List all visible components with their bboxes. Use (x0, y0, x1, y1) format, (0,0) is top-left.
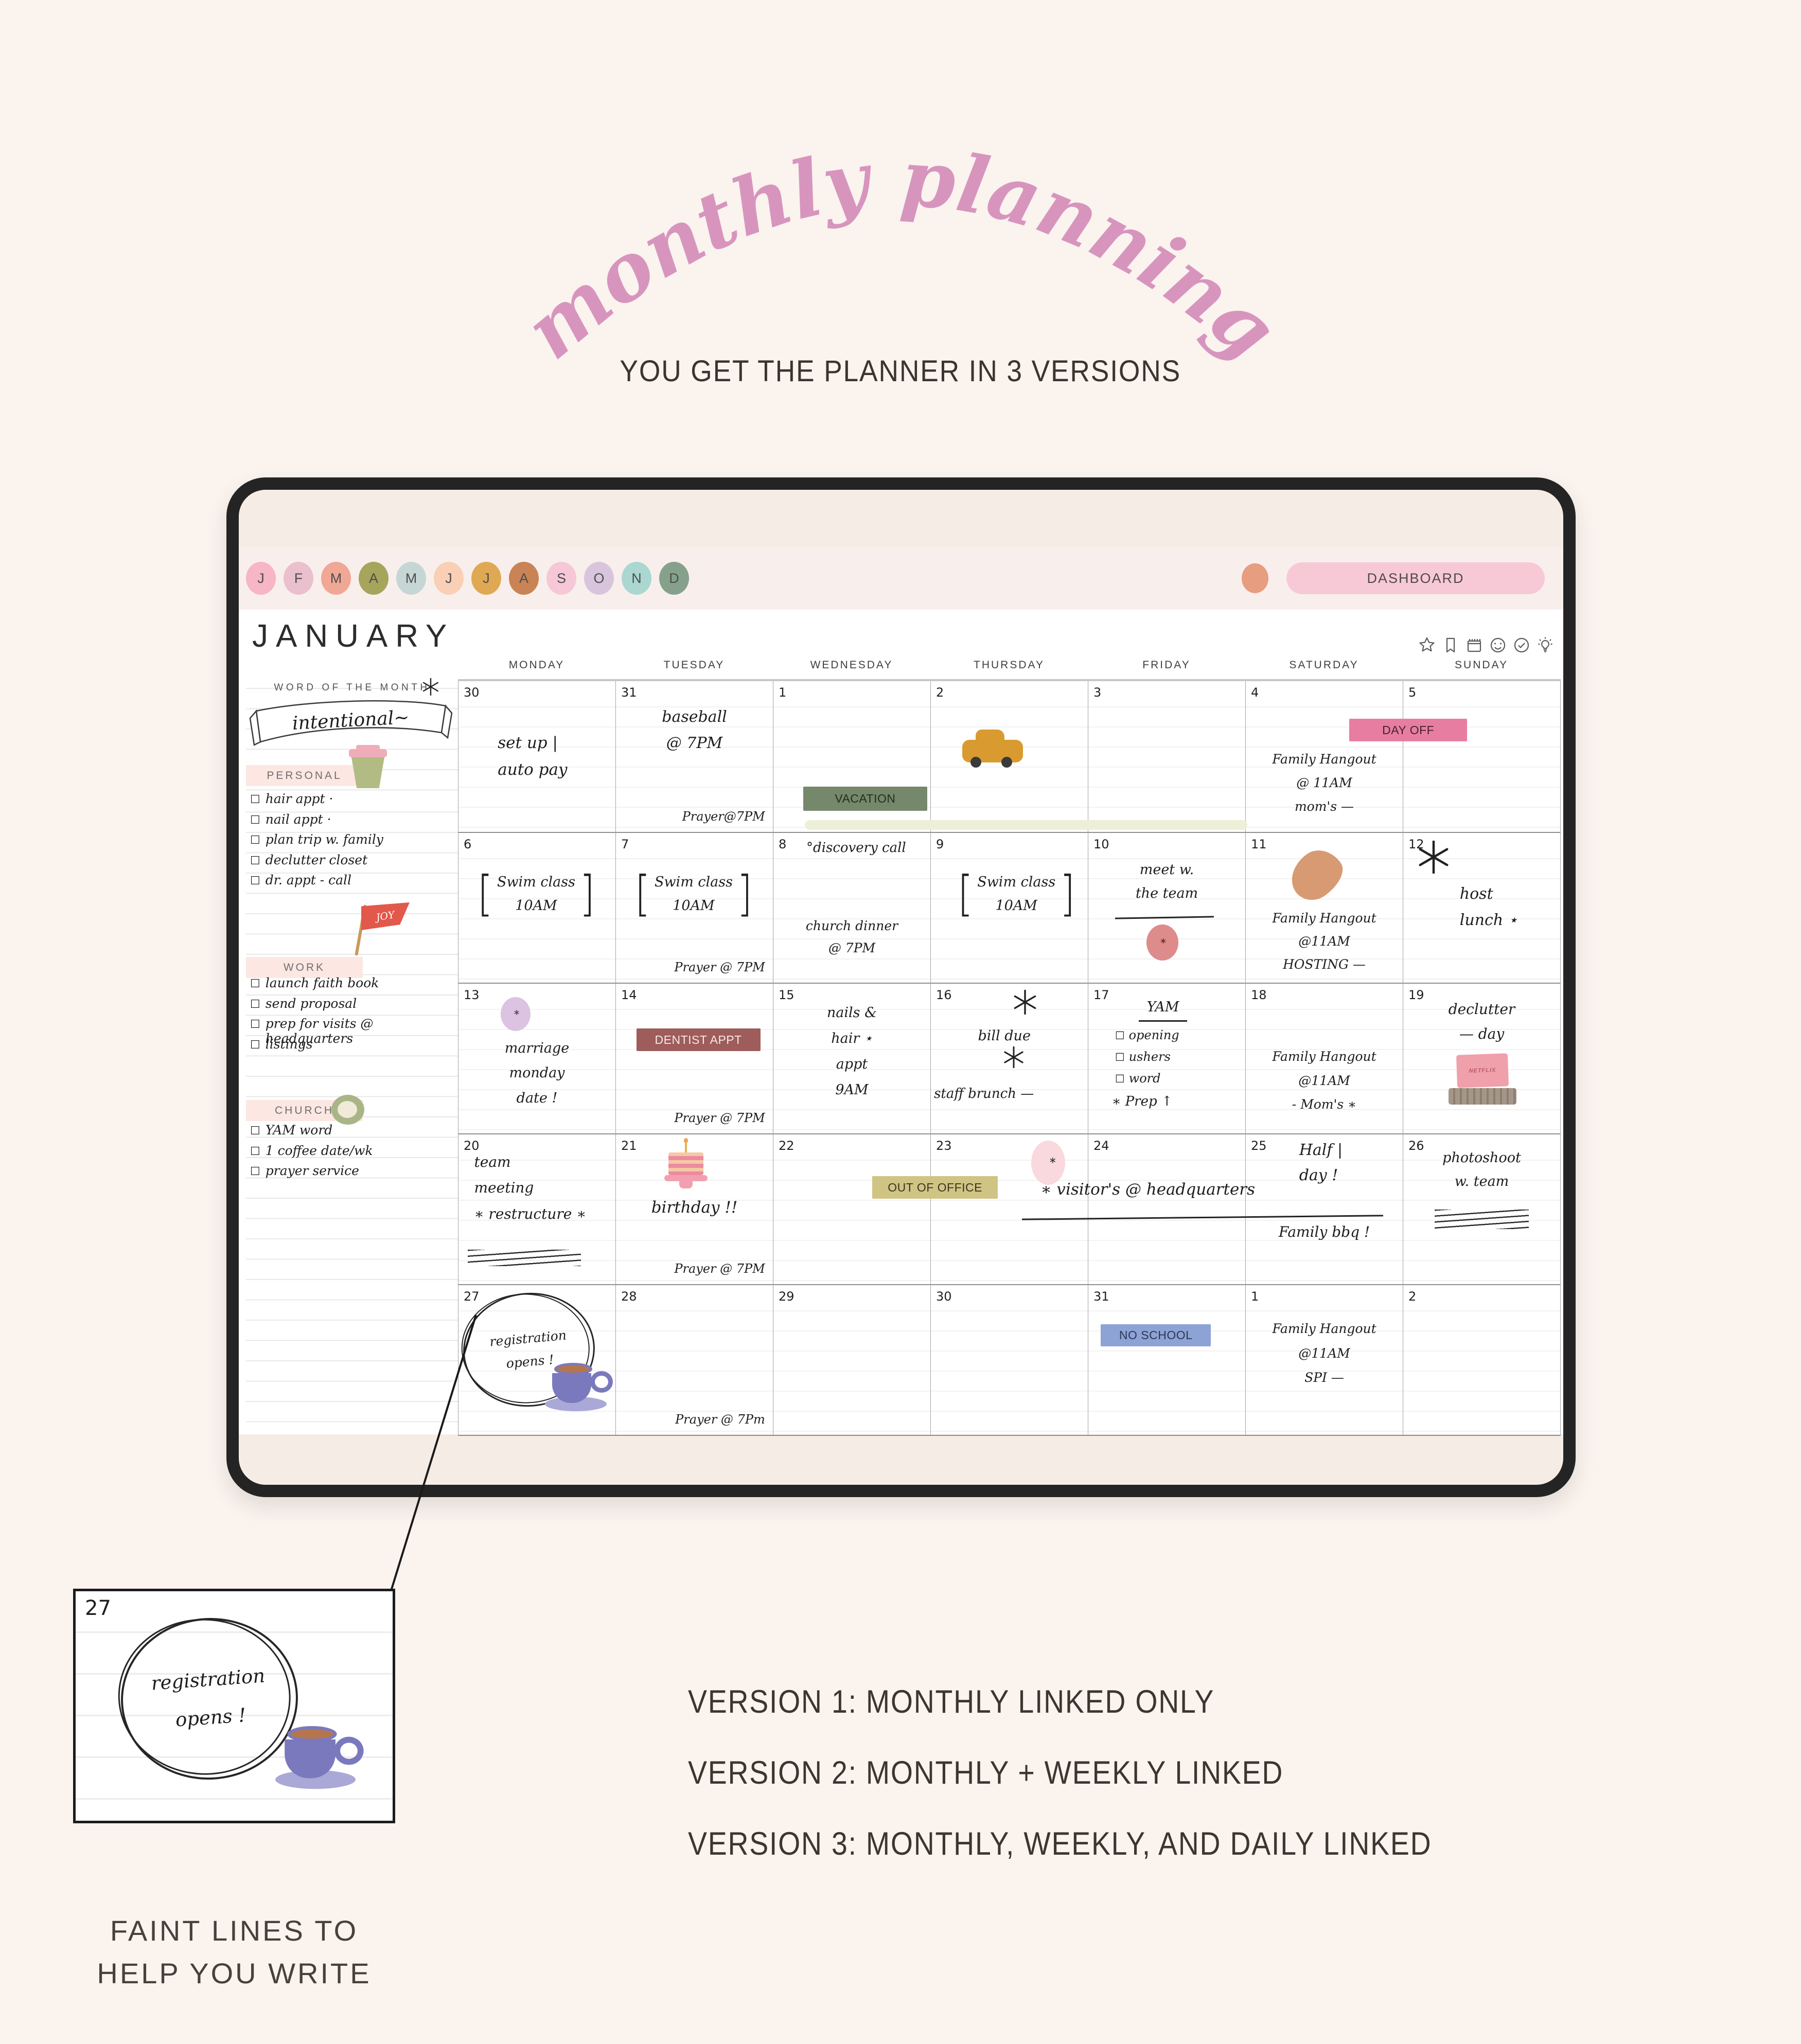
month-tab-J[interactable]: J (434, 562, 464, 595)
hand-note: host lunch ⋆ (1460, 881, 1518, 933)
day-number: 23 (936, 1139, 952, 1153)
calendar-cell-20[interactable]: 20team meeting ∗ restructure ∗ (458, 1133, 615, 1284)
calendar-cell-31[interactable]: 31baseball @ 7PMPrayer@7PM (615, 681, 773, 832)
day-number: 7 (621, 837, 629, 851)
sidebar-item: ☐YAM word (250, 1123, 453, 1143)
hand-note: ∗ visitor's @ headquarters (1041, 1176, 1410, 1203)
calendar-cell-12[interactable]: 12host lunch ⋆ (1403, 832, 1560, 983)
month-tab-J[interactable]: J (246, 562, 276, 595)
month-tabs: JFMAMJJASOND (246, 562, 689, 595)
sidebar-item: ☐dr. appt - call (250, 873, 453, 893)
day-header-wednesday: WEDNESDAY (773, 659, 930, 671)
day-number: 18 (1251, 988, 1267, 1002)
prayer-note: Prayer @ 7PM (674, 957, 765, 978)
bookmark-icon[interactable] (1442, 636, 1459, 654)
check-circle-icon[interactable] (1513, 636, 1530, 654)
day-number: 6 (464, 837, 471, 851)
day-header-monday: MONDAY (458, 659, 615, 671)
joy-flag-sticker: JOY (355, 898, 413, 959)
day-number: 3 (1093, 685, 1101, 700)
event-label: DENTIST APPT (637, 1028, 761, 1051)
bracketed-note: [Swim class 10AM] (463, 870, 609, 918)
day-header-saturday: SATURDAY (1245, 659, 1403, 671)
prayer-note: Prayer @ 7PM (674, 1108, 765, 1129)
hand-note: declutter — day (1403, 997, 1560, 1046)
smiley-icon[interactable] (1489, 636, 1507, 654)
latte-sticker (331, 1095, 364, 1125)
hand-note: baseball @ 7PM (616, 704, 773, 756)
day-number: 2 (1408, 1289, 1416, 1304)
scribble-doodle (1435, 1210, 1529, 1229)
calendar-cell-15[interactable]: 15nails & hair ⋆ appt 9AM (773, 983, 930, 1133)
croissant-sticker (1282, 841, 1351, 908)
planner-page: JANUARY WORD OF THE MONTH intentional~ (239, 610, 1563, 1434)
callout-caption: FAINT LINES TO HELP YOU WRITE (46, 1910, 422, 1995)
day-header-sunday: SUNDAY (1403, 659, 1560, 671)
calendar-cell-25[interactable]: 25Half | day !Family bbq ! (1245, 1133, 1403, 1284)
month-tab-D[interactable]: D (659, 562, 689, 595)
taxi-sticker (962, 730, 1023, 769)
calendar-cell-31[interactable]: 31NO SCHOOL (1088, 1284, 1245, 1435)
sidebar-section-title-work: WORK (246, 957, 363, 978)
hand-note: meet w. the team (1088, 858, 1245, 905)
svg-text:monthly planning: monthly planning (507, 131, 1294, 377)
hand-note: bill due (978, 1024, 1031, 1048)
calendar-cell-5[interactable]: 5 (1403, 681, 1560, 832)
calendar-cell-9[interactable]: 9[Swim class 10AM] (930, 832, 1088, 983)
day-number: 29 (779, 1289, 794, 1304)
hand-note: Family bbq ! (1246, 1220, 1403, 1245)
calendar-cell-30[interactable]: 30set up | auto pay (458, 681, 615, 832)
profile-dot[interactable] (1242, 563, 1268, 593)
day-number: 28 (621, 1289, 637, 1304)
hand-note: staff brunch — (934, 1082, 1034, 1105)
underline-doodle (1115, 916, 1214, 919)
day-number: 4 (1251, 685, 1259, 700)
event-label: NO SCHOOL (1101, 1324, 1211, 1347)
day-number: 31 (621, 685, 637, 700)
day-number: 21 (621, 1139, 637, 1153)
day-number: 16 (936, 988, 952, 1002)
cake-sticker (663, 1139, 709, 1188)
calendar-cell-16[interactable]: 16bill duestaff brunch — (930, 983, 1088, 1133)
day-number: 27 (464, 1289, 480, 1304)
hand-note: ∗ Prep ↑ (1112, 1090, 1173, 1113)
calendar-cell-21[interactable]: 21birthday !!Prayer @ 7PM (615, 1133, 773, 1284)
dashboard-button[interactable]: DASHBOARD (1286, 562, 1545, 594)
month-tab-M[interactable]: M (321, 562, 351, 595)
red-circle-sticker (1146, 925, 1178, 961)
page: monthly planning YOU GET THE PLANNER IN … (0, 0, 1801, 2044)
star-doodle (1003, 1046, 1025, 1068)
day-number: 30 (464, 685, 480, 700)
calendar-cell-10[interactable]: 10meet w. the team (1088, 832, 1245, 983)
sidebar-item: ☐nail appt · (250, 812, 453, 832)
calendar-icon[interactable] (1465, 636, 1483, 654)
day-number: 10 (1093, 837, 1109, 851)
hand-note: marriage monday date ! (458, 1036, 615, 1111)
star-doodle (1013, 990, 1037, 1015)
calendar-cell-7[interactable]: 7[Swim class 10AM]Prayer @ 7PM (615, 832, 773, 983)
day-number: 31 (1093, 1289, 1109, 1304)
page-title: monthly planning (507, 131, 1294, 377)
sidebar-item: ☐1 coffee date/wk (250, 1143, 453, 1164)
toolbar (1418, 636, 1554, 654)
day-number: 13 (464, 988, 480, 1002)
day-header-tuesday: TUESDAY (615, 659, 773, 671)
sidebar-items: ☐launch faith book☐send proposal☐prep fo… (250, 975, 453, 1057)
star-doodle (1417, 841, 1450, 874)
month-tab-J[interactable]: J (471, 562, 501, 595)
star-icon[interactable] (1418, 636, 1436, 654)
day-number: 1 (779, 685, 786, 700)
calendar-cell-30[interactable]: 30 (930, 1284, 1088, 1435)
day-number: 25 (1251, 1139, 1267, 1153)
hand-note: photoshoot w. team (1403, 1146, 1560, 1194)
hero-subtitle: YOU GET THE PLANNER IN 3 VERSIONS (0, 354, 1801, 388)
month-tab-O[interactable]: O (584, 562, 614, 595)
scribble-doodle (468, 1250, 581, 1266)
day-number: 9 (936, 837, 944, 851)
version-line-2: VERSION 2: MONTHLY + WEEKLY LINKED (688, 1754, 1533, 1825)
calendar-cell-3[interactable]: 3 (1088, 681, 1245, 832)
day-header-thursday: THURSDAY (930, 659, 1088, 671)
calendar-grid: 30set up | auto pay31baseball @ 7PMPraye… (458, 679, 1561, 1436)
sidebar-item: ☐send proposal (250, 996, 453, 1017)
version-line-1: VERSION 1: MONTHLY LINKED ONLY (688, 1683, 1533, 1754)
hand-note: °discovery call (806, 837, 906, 859)
event-label: DAY OFF (1349, 719, 1467, 741)
day-number: 8 (779, 837, 786, 851)
prayer-note: Prayer @ 7Pm (675, 1409, 765, 1430)
prayer-note: Prayer @ 7PM (674, 1258, 765, 1279)
calendar-cell-11[interactable]: 11Family Hangout @11AM HOSTING — (1245, 832, 1403, 983)
calendar-cell-2[interactable]: 2 (1403, 1284, 1560, 1435)
hand-note: Family Hangout @11AM HOSTING — (1246, 907, 1403, 976)
calendar-cell-22[interactable]: 22OUT OF OFFICE (773, 1133, 930, 1284)
calendar-cell-27[interactable]: 27registration opens ! (458, 1284, 615, 1435)
calendar-cell-24[interactable]: 24 (1088, 1133, 1245, 1284)
bulb-icon[interactable] (1537, 636, 1554, 654)
calendar-cell-2[interactable]: 2 (930, 681, 1088, 832)
calendar-cell-1[interactable]: 1VACATION (773, 681, 930, 832)
sidebar-item: ☐launch faith book (250, 975, 453, 996)
hero-arc-title: monthly planning (489, 131, 1312, 388)
sparkle-icon (422, 678, 439, 696)
event-label: VACATION (803, 787, 927, 811)
calendar-cell-28[interactable]: 28Prayer @ 7Pm (615, 1284, 773, 1435)
calendar-cell-23[interactable]: 23∗ visitor's @ headquarters (930, 1133, 1088, 1284)
calendar-cell-18[interactable]: 18Family Hangout @11AM - Mom's ∗ (1245, 983, 1403, 1133)
calendar-cell-26[interactable]: 26photoshoot w. team (1403, 1133, 1560, 1284)
calendar-cell-13[interactable]: 13marriage monday date ! (458, 983, 615, 1133)
highlight-bar (805, 820, 1247, 830)
hand-note: set up | auto pay (498, 730, 567, 784)
sidebar-item: ☐declutter closet (250, 852, 453, 873)
day-number: 30 (936, 1289, 952, 1304)
joy-flag-text: JOY (376, 909, 396, 923)
callout-day-number: 27 (85, 1596, 111, 1620)
calendar-cell-29[interactable]: 29 (773, 1284, 930, 1435)
hand-note: birthday !! (616, 1194, 773, 1221)
calendar-cell-19[interactable]: 19declutter — dayNETFLIX (1403, 983, 1560, 1133)
calendar-cell-14[interactable]: 14DENTIST APPTPrayer @ 7PM (615, 983, 773, 1133)
month-tab-N[interactable]: N (622, 562, 651, 595)
bracketed-note: [Swim class 10AM] (621, 870, 767, 918)
bracketed-note: [Swim class 10AM] (943, 870, 1089, 918)
laptop-screen-text: NETFLIX (1469, 1067, 1496, 1074)
calendar-cell-17[interactable]: 17YAM☐opening☐ushers☐word∗ Prep ↑ (1088, 983, 1245, 1133)
calendar-cell-1[interactable]: 1Family Hangout @11AM SPI — (1245, 1284, 1403, 1435)
month-tab-F[interactable]: F (284, 562, 313, 595)
day-number: 11 (1251, 837, 1267, 851)
prayer-note: Prayer@7PM (682, 806, 765, 827)
day-number: 17 (1093, 988, 1109, 1002)
calendar-cell-4[interactable]: 4DAY OFFFamily Hangout @ 11AM mom's — (1245, 681, 1403, 832)
tablet-mockup: JFMAMJJASOND DASHBOARD JANUARY WORD OF T… (226, 477, 1576, 1497)
day-number: 2 (936, 685, 944, 700)
event-label: OUT OF OFFICE (872, 1176, 998, 1199)
month-tab-M[interactable]: M (396, 562, 426, 595)
day-number: 22 (779, 1139, 794, 1153)
hand-note: Family Hangout @ 11AM mom's — (1246, 748, 1403, 819)
sidebar-item: ☐plan trip w. family (250, 832, 453, 852)
hand-note: Family Hangout @11AM - Mom's ∗ (1246, 1045, 1403, 1116)
coffee-cup-sticker (275, 1726, 357, 1789)
month-tab-bar: JFMAMJJASOND DASHBOARD (239, 546, 1563, 610)
month-title: JANUARY (252, 618, 454, 654)
month-tab-A[interactable]: A (509, 562, 539, 595)
day-number: 24 (1093, 1139, 1109, 1153)
day-number: 1 (1251, 1289, 1259, 1304)
callout-box: 27 registrationopens ! (73, 1589, 395, 1823)
hand-note: church dinner @ 7PM (773, 915, 930, 959)
sidebar: WORD OF THE MONTH intentional~ PERSONAL☐… (246, 679, 458, 1433)
sidebar-section-title-personal: PERSONAL (246, 765, 363, 786)
lavender-circle-sticker (501, 997, 531, 1031)
checklist: ☐opening☐ushers☐word (1115, 1024, 1179, 1089)
day-number: 5 (1408, 685, 1416, 700)
calendar-cell-6[interactable]: 6[Swim class 10AM] (458, 832, 615, 983)
word-of-month-banner: intentional~ (249, 697, 453, 746)
hand-note: nails & hair ⋆ appt 9AM (773, 1000, 930, 1103)
day-header-friday: FRIDAY (1088, 659, 1245, 671)
sidebar-items: ☐YAM word☐1 coffee date/wk☐prayer servic… (250, 1123, 453, 1184)
version-line-3: VERSION 3: MONTHLY, WEEKLY, AND DAILY LI… (688, 1825, 1533, 1896)
laptop-sticker: NETFLIX (1449, 1054, 1516, 1105)
versions-list: VERSION 1: MONTHLY LINKED ONLYVERSION 2:… (688, 1683, 1533, 1896)
planner-screen: JFMAMJJASOND DASHBOARD JANUARY WORD OF T… (239, 490, 1563, 1485)
sidebar-item: ☐hair appt · (250, 791, 453, 812)
sidebar-item: ☐prayer service (250, 1163, 453, 1184)
calendar-cell-8[interactable]: 8°discovery callchurch dinner @ 7PM (773, 832, 930, 983)
sidebar-items: ☐hair appt ·☐nail appt ·☐plan trip w. fa… (250, 791, 453, 893)
month-tab-A[interactable]: A (359, 562, 389, 595)
green-cup-sticker (349, 744, 388, 789)
hand-note: Family Hangout @11AM SPI — (1246, 1317, 1403, 1390)
purple-cup-sticker (545, 1363, 608, 1411)
day-headers: MONDAYTUESDAYWEDNESDAYTHURSDAYFRIDAYSATU… (458, 659, 1560, 671)
hand-note: YAM (1139, 996, 1188, 1022)
month-tab-S[interactable]: S (546, 562, 576, 595)
day-number: 14 (621, 988, 637, 1002)
sidebar-item: ☐prep for visits @ headquarters (250, 1016, 453, 1037)
hand-note: team meeting ∗ restructure ∗ (474, 1149, 587, 1227)
